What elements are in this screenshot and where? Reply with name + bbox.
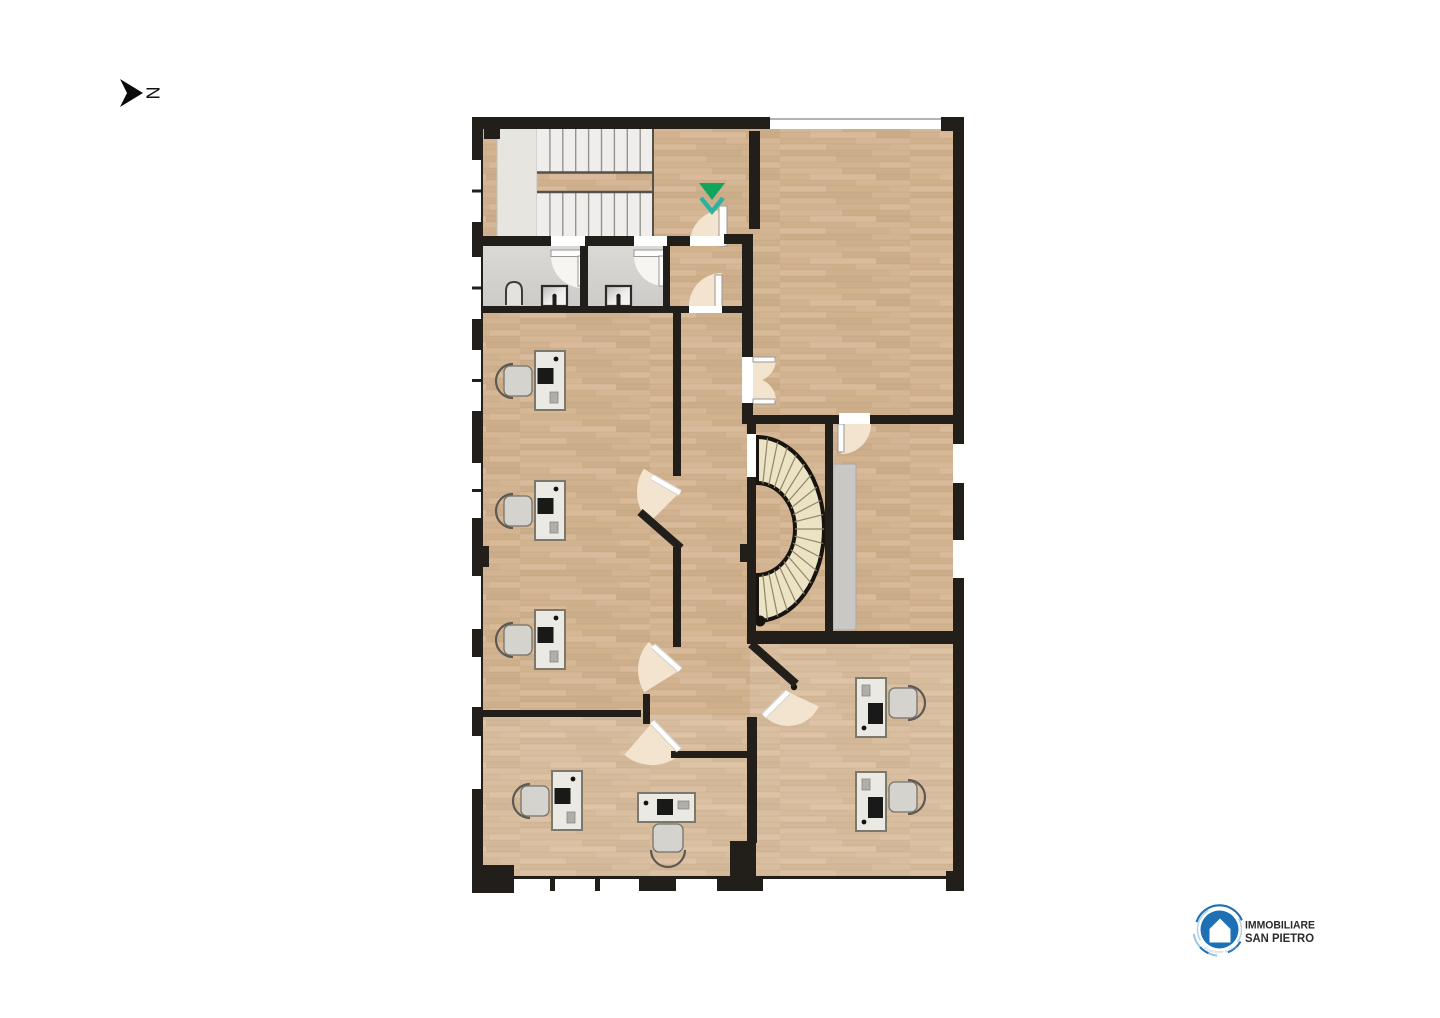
svg-text:N: N bbox=[143, 87, 163, 100]
svg-text:IMMOBILIARE: IMMOBILIARE bbox=[1245, 920, 1315, 932]
svg-text:SAN PIETRO: SAN PIETRO bbox=[1245, 931, 1314, 945]
